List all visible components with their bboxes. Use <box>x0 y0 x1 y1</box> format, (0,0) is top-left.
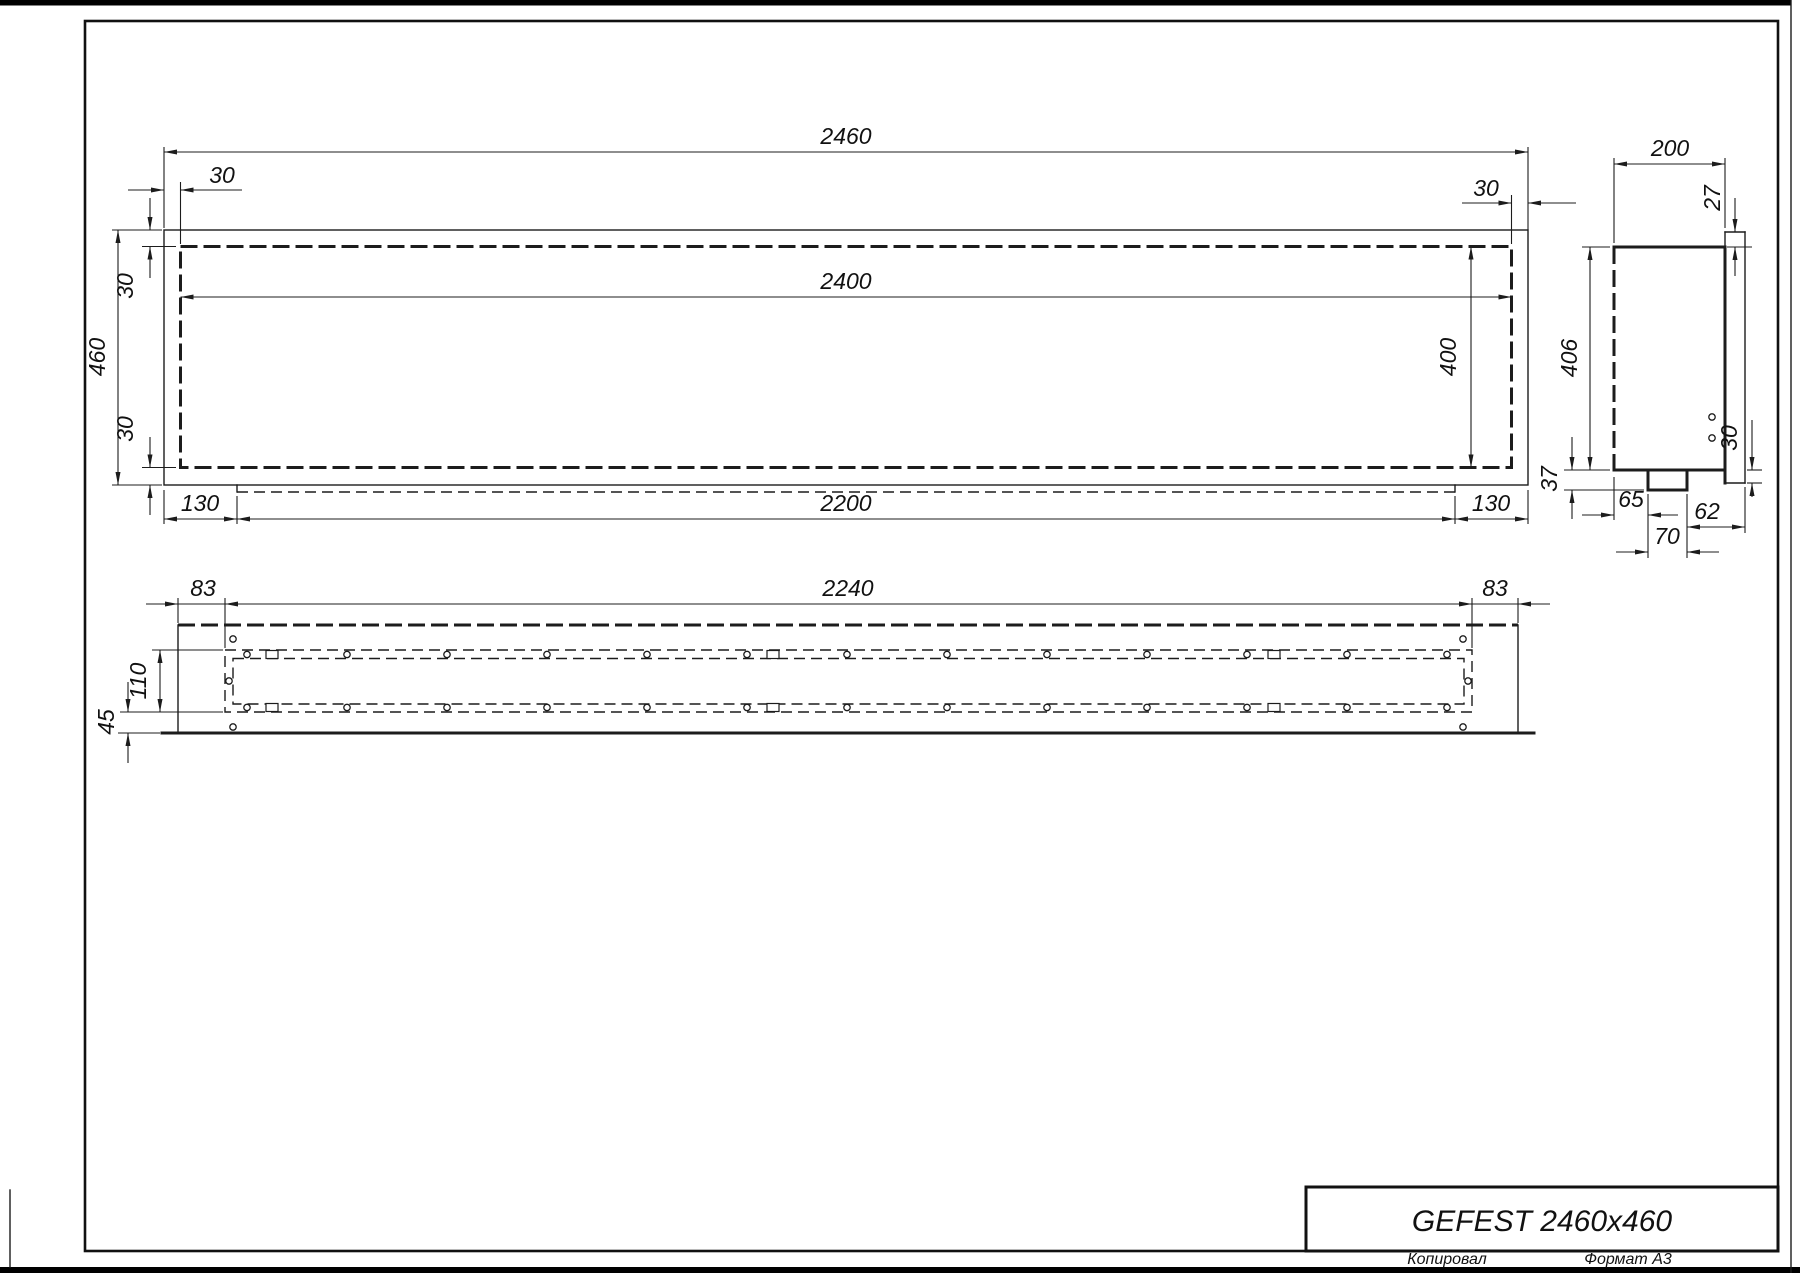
footer-copied-label: Копировал <box>1407 1251 1487 1268</box>
bottom-tray-inner-hidden <box>233 659 1464 705</box>
dim-front-offset-side-top: 30 <box>112 273 138 299</box>
dim-bottom-opening-width: 2240 <box>821 575 873 601</box>
dim-bottom-tray-depth: 110 <box>125 662 151 699</box>
side-view: 200 27 406 30 37 65 62 70 <box>1536 135 1762 558</box>
dim-front-overall-width: 2460 <box>819 123 871 149</box>
dim-front-opening-width: 2400 <box>819 268 871 294</box>
dim-bottom-inset-right: 83 <box>1482 575 1508 601</box>
footer-format-label: Формат А3 <box>1584 1251 1672 1268</box>
dim-side-bracket-width: 70 <box>1654 523 1680 549</box>
side-hole-upper <box>1709 414 1715 420</box>
drawing-sheet-svg: 2460 30 30 2400 460 30 30 400 130 2200 1… <box>0 0 1800 1273</box>
bottom-tray-outer-hidden <box>225 650 1472 712</box>
side-view-dimensions: 200 27 406 30 37 65 62 70 <box>1536 135 1762 558</box>
bottom-view-geometry <box>162 625 1534 733</box>
front-view: 2460 30 30 2400 460 30 30 400 130 2200 1… <box>84 123 1576 524</box>
dim-front-offset-top-left: 30 <box>209 162 235 188</box>
dim-side-bottom-lip: 30 <box>1716 425 1742 451</box>
top-edge-bar <box>0 0 1791 6</box>
sheet-edge-marks <box>0 0 1800 1273</box>
dim-front-base-inset-left: 130 <box>181 490 220 516</box>
dim-front-base-width: 2200 <box>819 490 871 516</box>
dim-side-top-lip: 27 <box>1699 184 1725 212</box>
dim-side-bracket-drop: 37 <box>1536 465 1562 492</box>
title-block: GEFEST 2460x460 Копировал Формат А3 <box>1306 1187 1778 1268</box>
bottom-edge-bar <box>0 1267 1800 1273</box>
dim-side-height: 406 <box>1556 339 1582 378</box>
dim-front-opening-height: 400 <box>1435 338 1461 377</box>
bottom-clips <box>266 651 1280 712</box>
dim-bottom-inset-left: 83 <box>190 575 216 601</box>
dim-front-offset-side-bottom: 30 <box>112 416 138 442</box>
title-block-model: GEFEST 2460x460 <box>1412 1205 1672 1238</box>
bottom-view-dimensions: 83 2240 83 110 45 <box>93 575 1550 763</box>
drawing-frame <box>85 21 1778 1251</box>
dim-side-depth: 200 <box>1650 135 1690 161</box>
dim-front-overall-height: 460 <box>84 338 110 377</box>
front-view-dimensions: 2460 30 30 2400 460 30 30 400 130 2200 1… <box>84 123 1576 524</box>
dim-front-offset-top-right: 30 <box>1473 175 1499 201</box>
dim-side-bracket-offset-left: 65 <box>1618 486 1644 512</box>
dim-front-base-inset-right: 130 <box>1472 490 1511 516</box>
side-hole-lower <box>1709 435 1715 441</box>
bottom-view: 83 2240 83 110 45 <box>93 575 1550 763</box>
dim-side-bracket-offset-right: 62 <box>1694 498 1720 524</box>
drawing-sheet: 2460 30 30 2400 460 30 30 400 130 2200 1… <box>0 0 1800 1273</box>
dim-bottom-front-offset: 45 <box>93 709 119 735</box>
side-bottom-bracket <box>1648 470 1687 490</box>
